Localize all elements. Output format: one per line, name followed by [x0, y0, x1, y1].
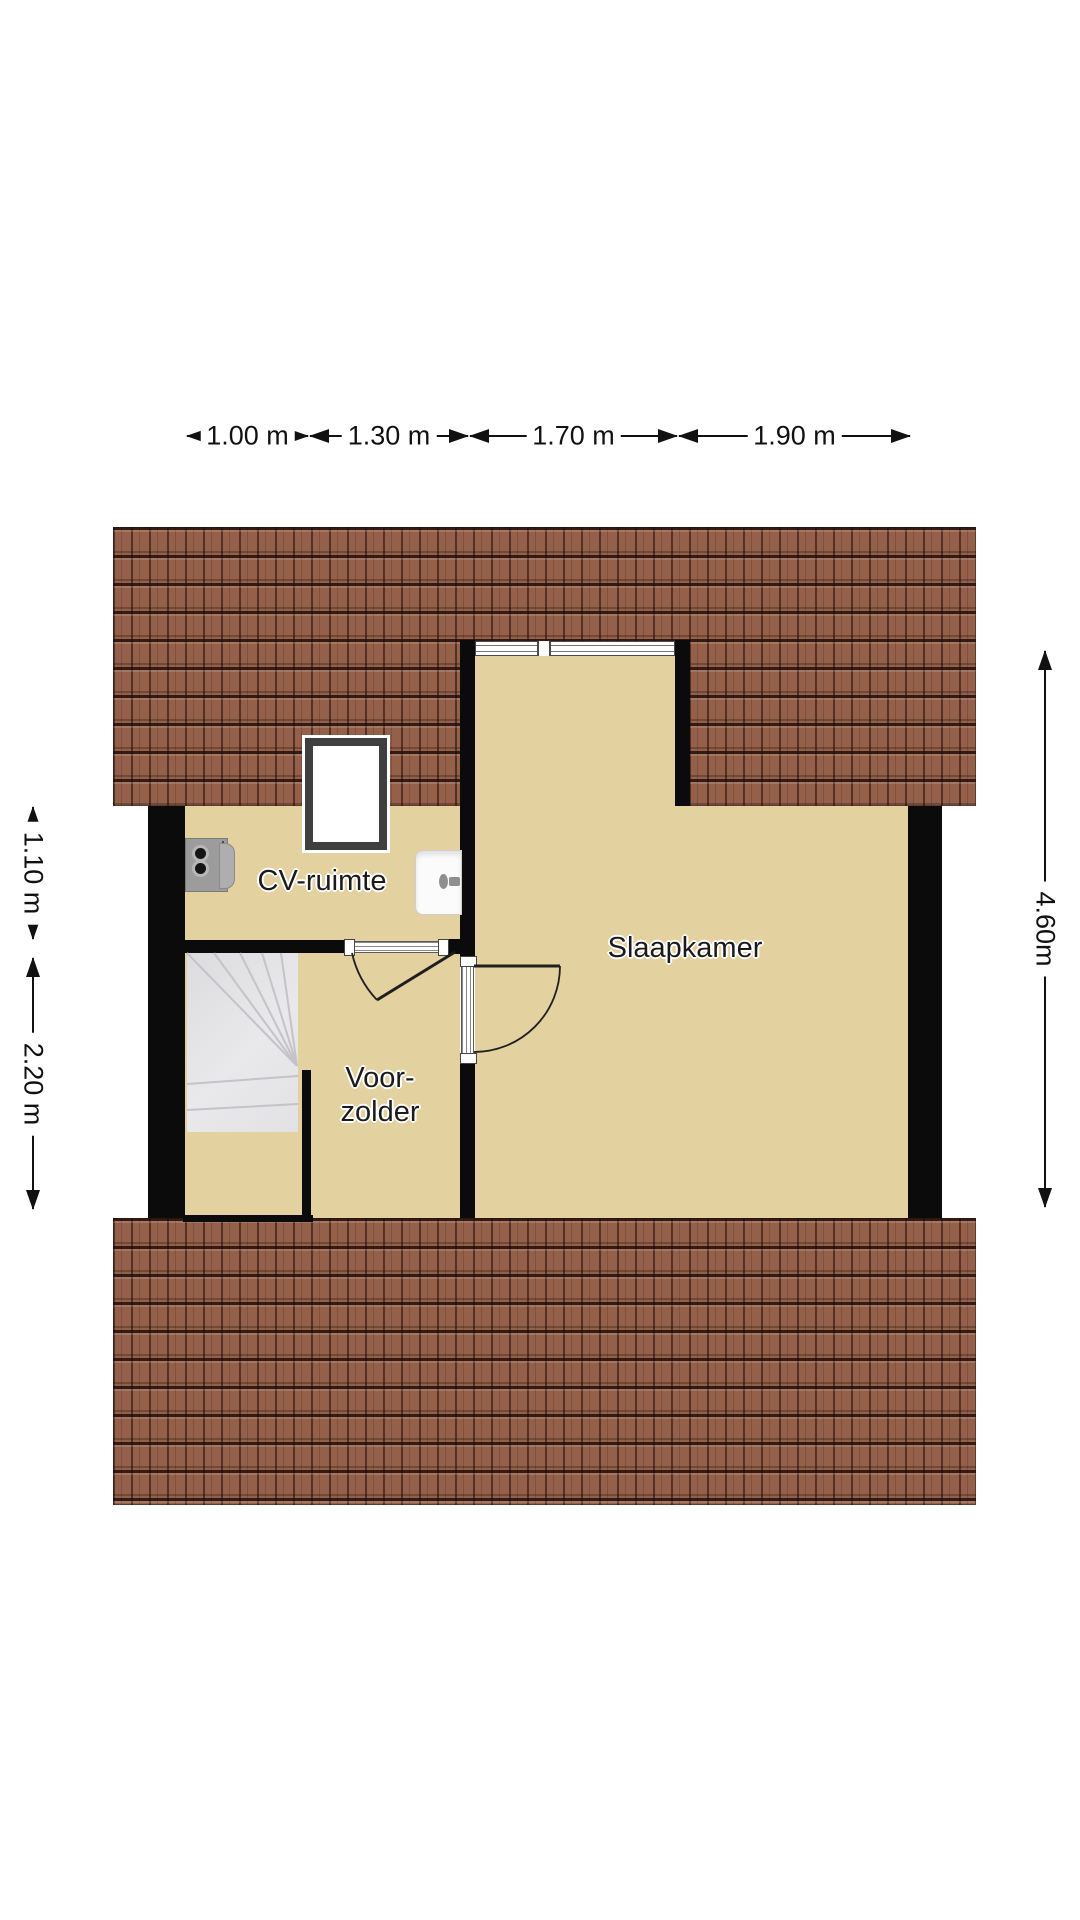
dimension-left-2: 2.20 m	[0, 957, 73, 1210]
wall-cv-bottom	[185, 940, 345, 953]
floor-slaapkamer-upper	[475, 656, 675, 806]
arrow-right-icon	[891, 429, 911, 443]
floor-slaapkamer	[475, 806, 908, 1218]
dimension-label: 1.70 m	[526, 421, 621, 452]
cv-ruimte-door-opening	[345, 941, 448, 953]
roof-bottom	[113, 1218, 976, 1505]
dimension-top-3: 1.70 m	[469, 420, 678, 452]
winder-staircase	[187, 953, 298, 1132]
room-label-slaapkamer: Slaapkamer	[608, 931, 763, 965]
slaapkamer-door-opening	[461, 957, 474, 1063]
arrow-up-icon	[1038, 650, 1052, 670]
room-label-voorzolder: Voor- zolder	[341, 1061, 420, 1129]
roof-window-frame	[305, 738, 387, 850]
wall-left-outer	[148, 806, 185, 1218]
wall-under-stairs	[183, 1215, 313, 1222]
wall-slaapkamer-left-lower	[460, 1063, 475, 1218]
wall-right-outer	[908, 806, 942, 1218]
arrow-left-icon	[309, 429, 329, 443]
boiler-panel-line	[222, 841, 224, 889]
faucet-icon	[449, 877, 460, 886]
dimension-top-4: 1.90 m	[678, 420, 911, 452]
floorplan-canvas: 1.00 m 1.30 m 1.70 m 1.90 m	[0, 0, 1080, 1920]
arrow-left-icon	[469, 429, 489, 443]
hand-basin	[415, 850, 462, 915]
dimension-label: 1.90 m	[747, 421, 842, 452]
arrow-down-icon	[1038, 1188, 1052, 1208]
room-label-cv-ruimte: CV-ruimte	[258, 864, 387, 898]
room-label-voorzolder-line1: Voor-	[341, 1061, 420, 1095]
dimension-top-2: 1.30 m	[309, 420, 469, 452]
wall-slaapkamer-left-upper	[460, 640, 475, 957]
bedroom-window	[475, 641, 675, 656]
cv-boiler	[185, 838, 228, 892]
dimension-top-1: 1.00 m	[186, 420, 309, 452]
window-mullion	[537, 641, 551, 656]
arrow-right-icon	[449, 429, 469, 443]
dimension-left-1: 1.10 m	[0, 806, 73, 940]
wall-slaapkamer-right-upper	[675, 640, 690, 806]
arrow-right-icon	[658, 429, 678, 443]
roof-window	[302, 735, 390, 853]
faucet-knob-icon	[439, 874, 448, 889]
boiler-knob-icon	[195, 863, 206, 874]
arrow-left-icon	[678, 429, 698, 443]
wall-door-hinge-block	[448, 939, 462, 954]
room-label-voorzolder-line2: zolder	[341, 1095, 420, 1129]
dimension-label: 4.60m	[1030, 881, 1061, 976]
arrow-down-icon	[26, 1190, 40, 1210]
wall-stair-stub	[302, 1070, 311, 1218]
dimension-label: 2.20 m	[18, 1032, 49, 1135]
arrow-up-icon	[26, 957, 40, 977]
boiler-knob-icon	[195, 848, 206, 859]
dimension-label: 1.30 m	[342, 421, 437, 452]
dimension-right-1: 4.60m	[1005, 650, 1080, 1208]
dimension-label: 1.10 m	[18, 822, 49, 925]
dimension-label: 1.00 m	[200, 421, 295, 452]
